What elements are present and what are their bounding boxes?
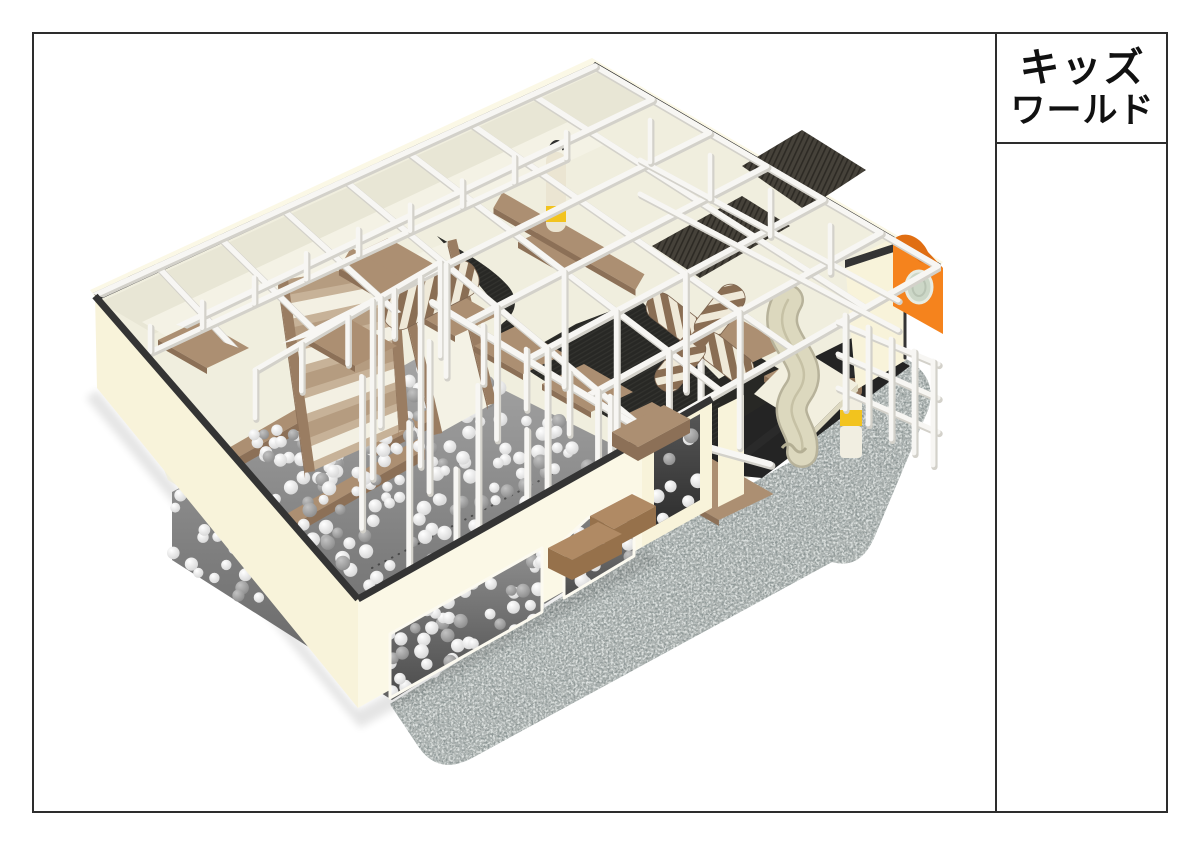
title-line-1: キッズ bbox=[1020, 45, 1146, 91]
title-block: キッズ ワールド bbox=[997, 34, 1168, 142]
drawing-sheet: キッズ ワールド bbox=[0, 0, 1200, 848]
sheet-border bbox=[32, 32, 1168, 813]
title-line-2: ワールド bbox=[1010, 91, 1154, 131]
title-column-divider bbox=[995, 32, 997, 813]
title-block-divider bbox=[995, 142, 1168, 144]
